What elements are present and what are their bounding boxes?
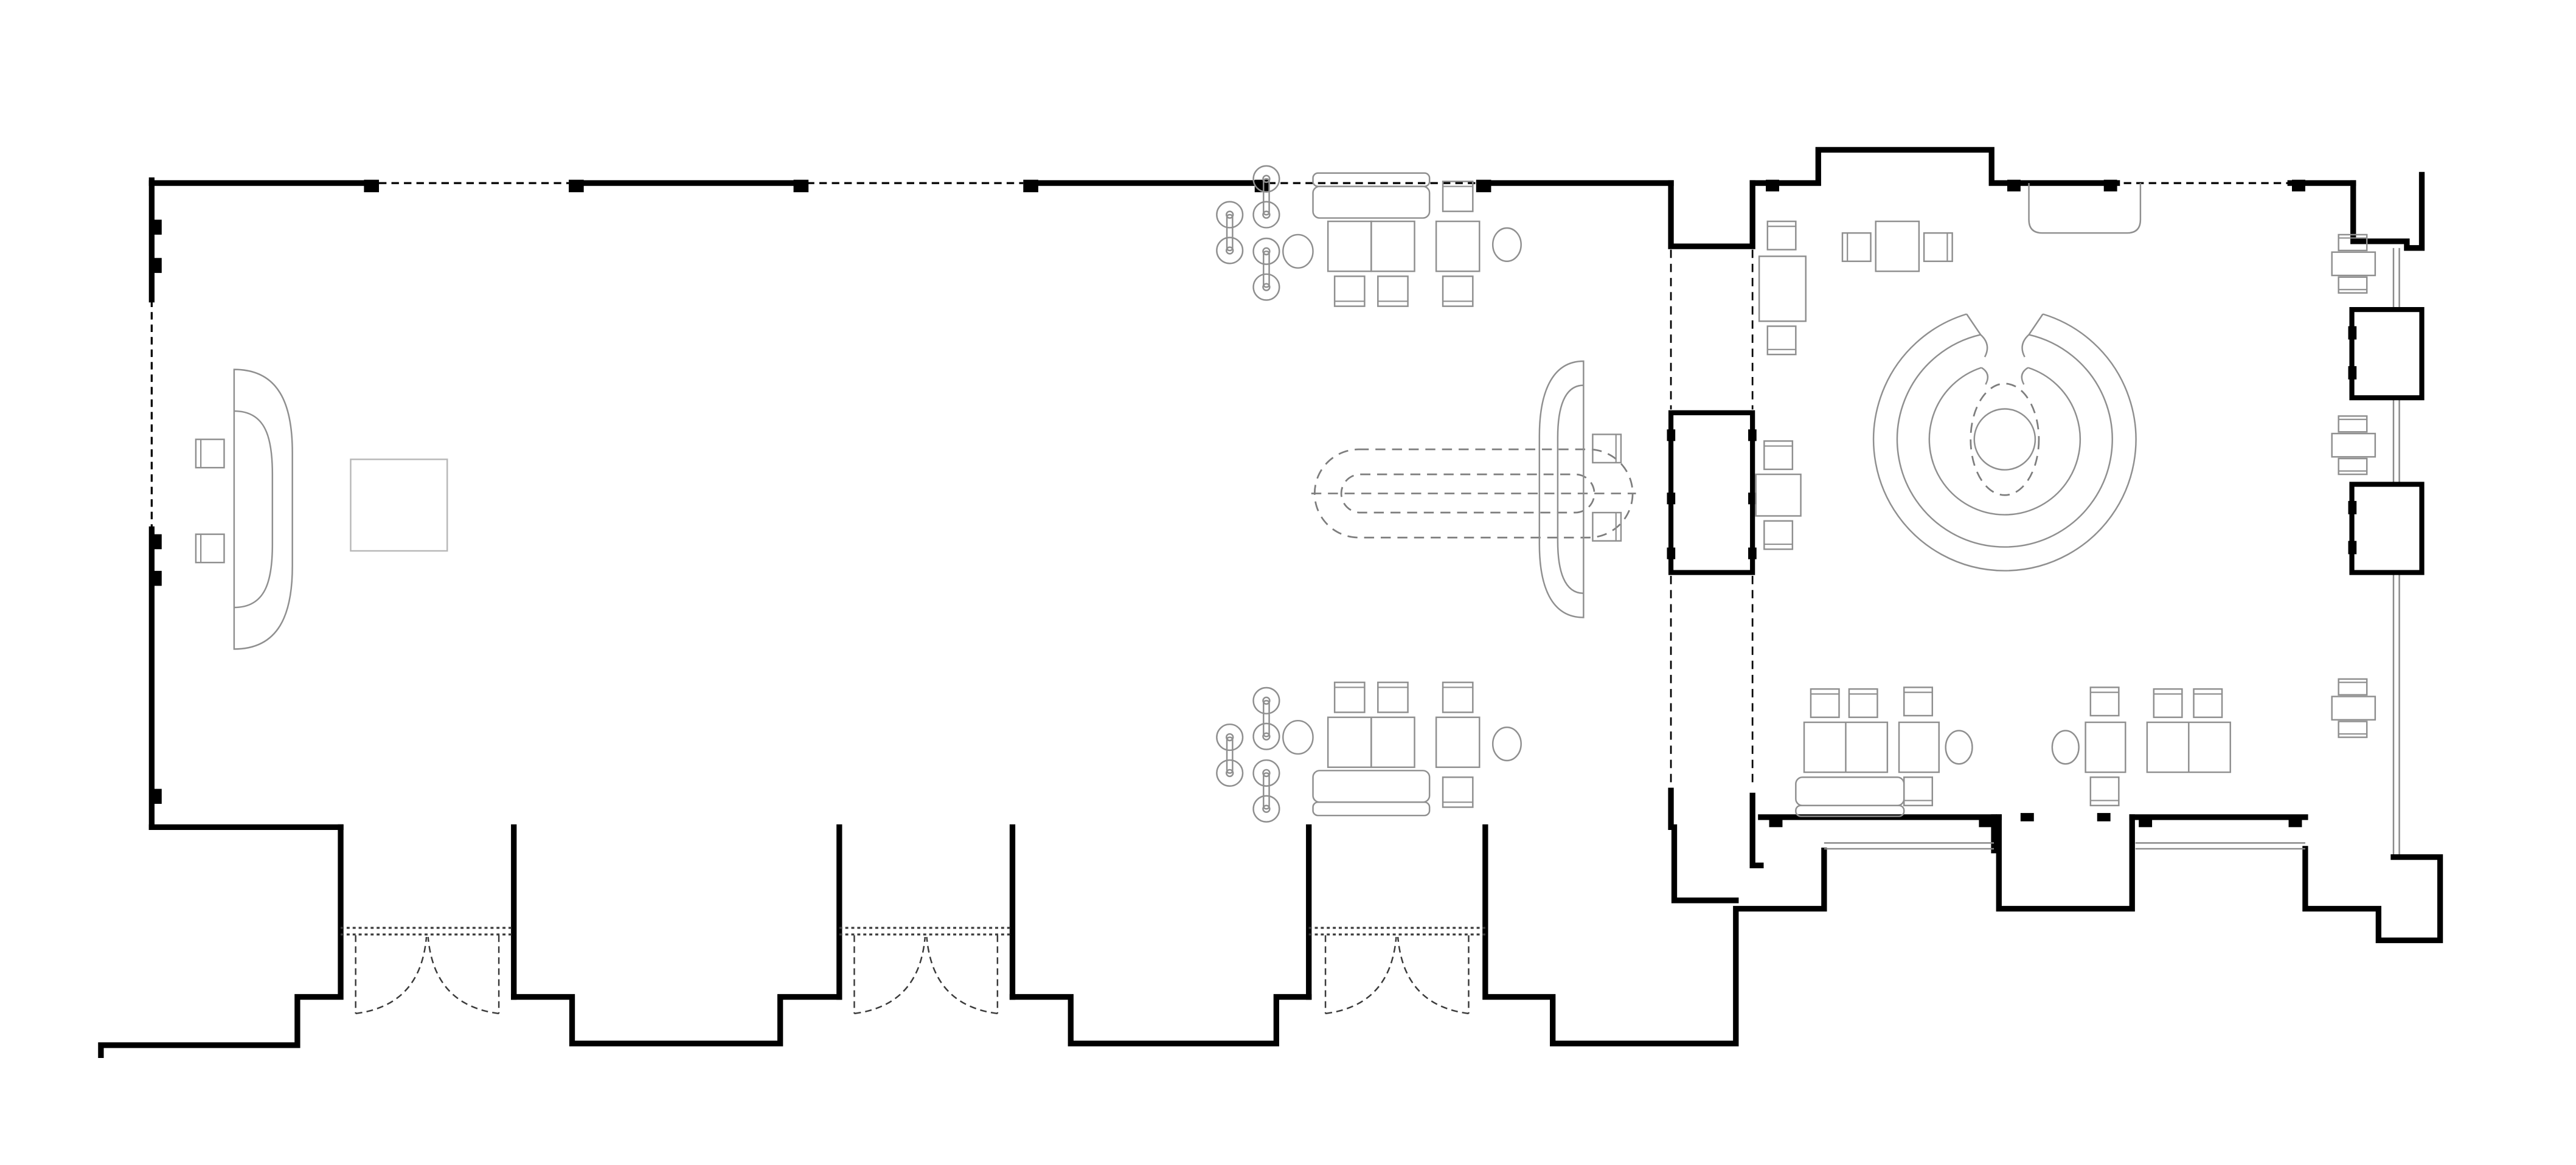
passage-pier	[1671, 413, 1752, 573]
center-round-table	[1974, 409, 2035, 470]
floor-plan-canvas	[0, 0, 2576, 1165]
east-wall-bay-middle	[2352, 309, 2422, 398]
east-wall-bay-lower	[2352, 485, 2422, 573]
floor-plan-page	[0, 0, 2576, 1165]
plan-background	[1, 0, 2575, 1165]
